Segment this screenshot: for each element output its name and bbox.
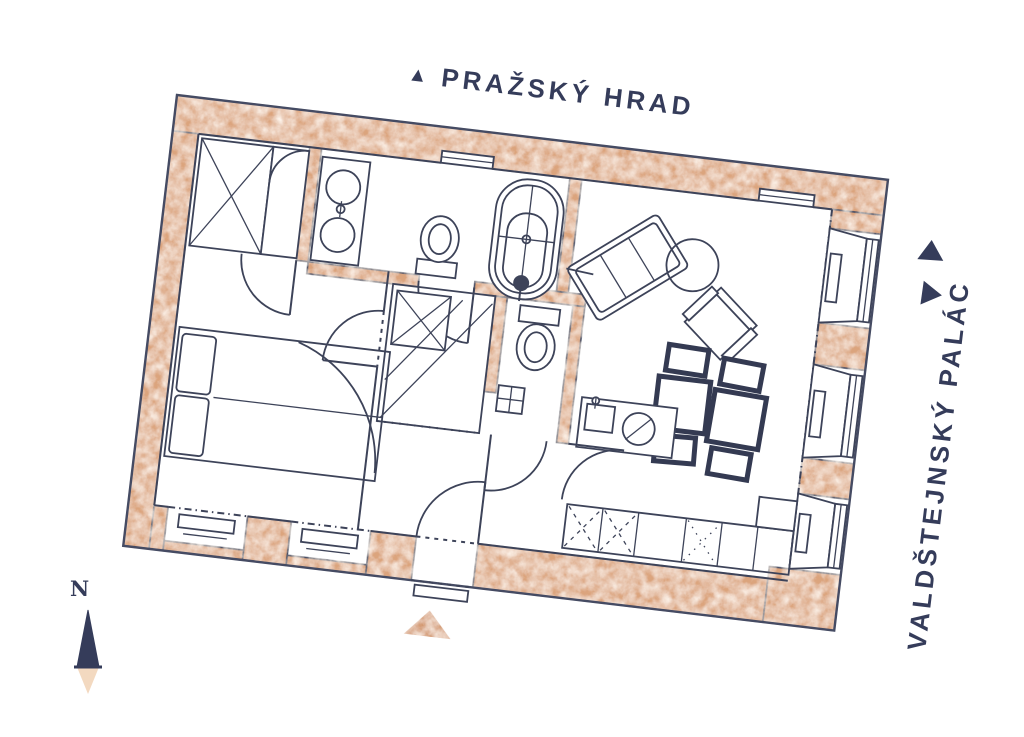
door-swing xyxy=(562,444,624,506)
bottom-wall-pier xyxy=(242,516,291,565)
entrance-marker-triangle xyxy=(404,608,454,639)
floor-plan xyxy=(117,95,888,684)
living-room xyxy=(533,204,829,575)
tall-unit xyxy=(756,497,797,531)
bottom-wall-pier xyxy=(366,531,417,580)
dining-chair xyxy=(665,344,709,376)
entrance-door-swing xyxy=(416,475,485,544)
partition-closet-wc xyxy=(484,296,507,393)
corner-chunk xyxy=(763,566,841,630)
compass-north-letter: N xyxy=(70,576,89,601)
window-niche xyxy=(789,493,848,574)
wc-toilet xyxy=(513,305,560,372)
partition-bathroom-south xyxy=(307,262,420,287)
right-wall-pier xyxy=(798,458,854,500)
door-leaf xyxy=(290,260,297,315)
dining-chair xyxy=(720,358,764,391)
entrance-door-leaf xyxy=(478,482,485,544)
pillow xyxy=(169,395,210,457)
up-triangle-icon: ▲ xyxy=(407,63,429,87)
window-outer-strip xyxy=(163,541,244,560)
bathroom-toilet xyxy=(416,214,463,278)
door-swing xyxy=(235,254,296,315)
door-swing xyxy=(484,435,546,497)
hand-basin xyxy=(496,385,525,414)
entrance-step xyxy=(413,585,468,602)
needle-south-half xyxy=(77,667,99,694)
up-triangle-icon xyxy=(917,239,944,261)
north-compass-needle xyxy=(74,610,102,694)
right-windows xyxy=(789,228,879,575)
dining-chair xyxy=(707,448,751,480)
window-outer-strip xyxy=(286,555,367,574)
bathtub xyxy=(485,176,567,305)
right-wall-pier xyxy=(814,323,871,371)
dining-table xyxy=(706,389,766,449)
window-niche xyxy=(819,228,880,328)
right-triangle-icon xyxy=(920,281,943,308)
needle-north-half xyxy=(77,610,99,667)
closet-and-wc xyxy=(370,284,563,497)
door-leaf xyxy=(484,435,491,491)
radiator xyxy=(301,529,358,549)
floor-plan-svg xyxy=(0,0,1024,737)
bedroom xyxy=(158,138,412,530)
radiator xyxy=(178,514,235,534)
window-niche xyxy=(802,364,863,463)
double-bed xyxy=(164,327,390,481)
floor-plan-page: ▲PRAŽSKÝ HRAD VALDŠTEJNSKÝ PALÁC N xyxy=(0,0,1024,737)
door-leaf xyxy=(468,288,475,344)
pillow xyxy=(176,333,217,395)
